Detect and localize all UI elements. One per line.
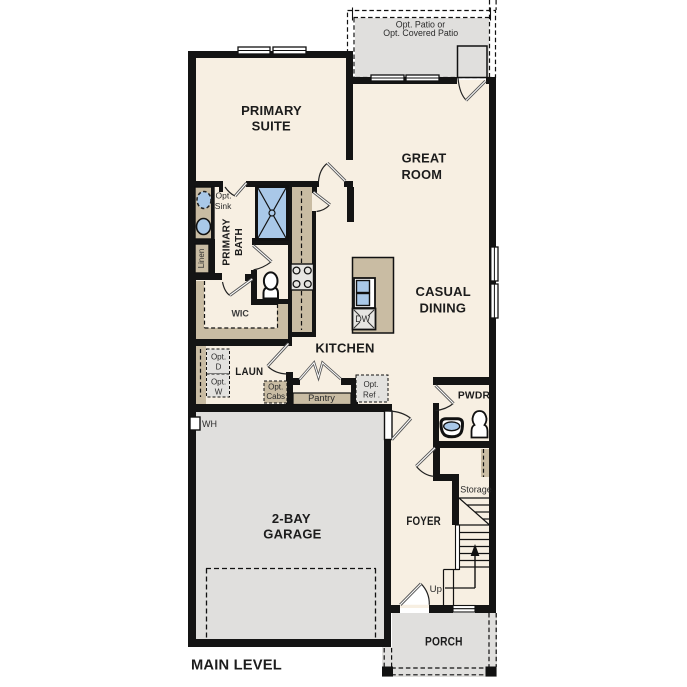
svg-text:PWDR: PWDR — [458, 391, 491, 402]
svg-text:DINING: DINING — [419, 300, 466, 315]
svg-text:Opt.: Opt. — [211, 353, 226, 362]
svg-text:GREAT: GREAT — [402, 150, 447, 165]
svg-text:Opt.: Opt. — [211, 378, 226, 387]
svg-text:LAUN: LAUN — [235, 366, 263, 378]
svg-text:GARAGE: GARAGE — [263, 527, 321, 542]
svg-text:W: W — [215, 388, 223, 397]
svg-text:PRIMARY: PRIMARY — [241, 103, 302, 118]
svg-text:DW: DW — [355, 314, 370, 324]
svg-text:PRIMARY: PRIMARY — [222, 218, 233, 265]
svg-text:Opt. Covered Patio: Opt. Covered Patio — [383, 28, 458, 38]
svg-text:WIC: WIC — [231, 308, 249, 318]
svg-text:Storage: Storage — [460, 485, 492, 495]
svg-text:SUITE: SUITE — [252, 119, 291, 134]
svg-text:Opt.: Opt. — [268, 383, 283, 392]
svg-text:2-BAY: 2-BAY — [272, 511, 311, 526]
svg-text:D: D — [216, 363, 222, 372]
svg-text:KITCHEN: KITCHEN — [315, 341, 374, 356]
svg-text:ROOM: ROOM — [401, 167, 442, 182]
svg-text:Sink: Sink — [215, 201, 232, 211]
svg-text:Cabs: Cabs — [266, 392, 285, 401]
svg-text:CASUAL: CASUAL — [416, 284, 471, 299]
svg-text:PORCH: PORCH — [425, 636, 463, 648]
svg-text:WH: WH — [202, 419, 217, 429]
svg-text:Linen: Linen — [197, 249, 206, 269]
svg-text:Pantry: Pantry — [308, 393, 335, 403]
svg-text:MAIN LEVEL: MAIN LEVEL — [191, 658, 282, 674]
svg-text:BATH: BATH — [234, 228, 245, 256]
svg-text:Up: Up — [430, 584, 442, 595]
svg-text:Opt.: Opt. — [363, 380, 378, 389]
svg-text:Ref .: Ref . — [363, 390, 380, 399]
svg-text:FOYER: FOYER — [406, 515, 441, 528]
